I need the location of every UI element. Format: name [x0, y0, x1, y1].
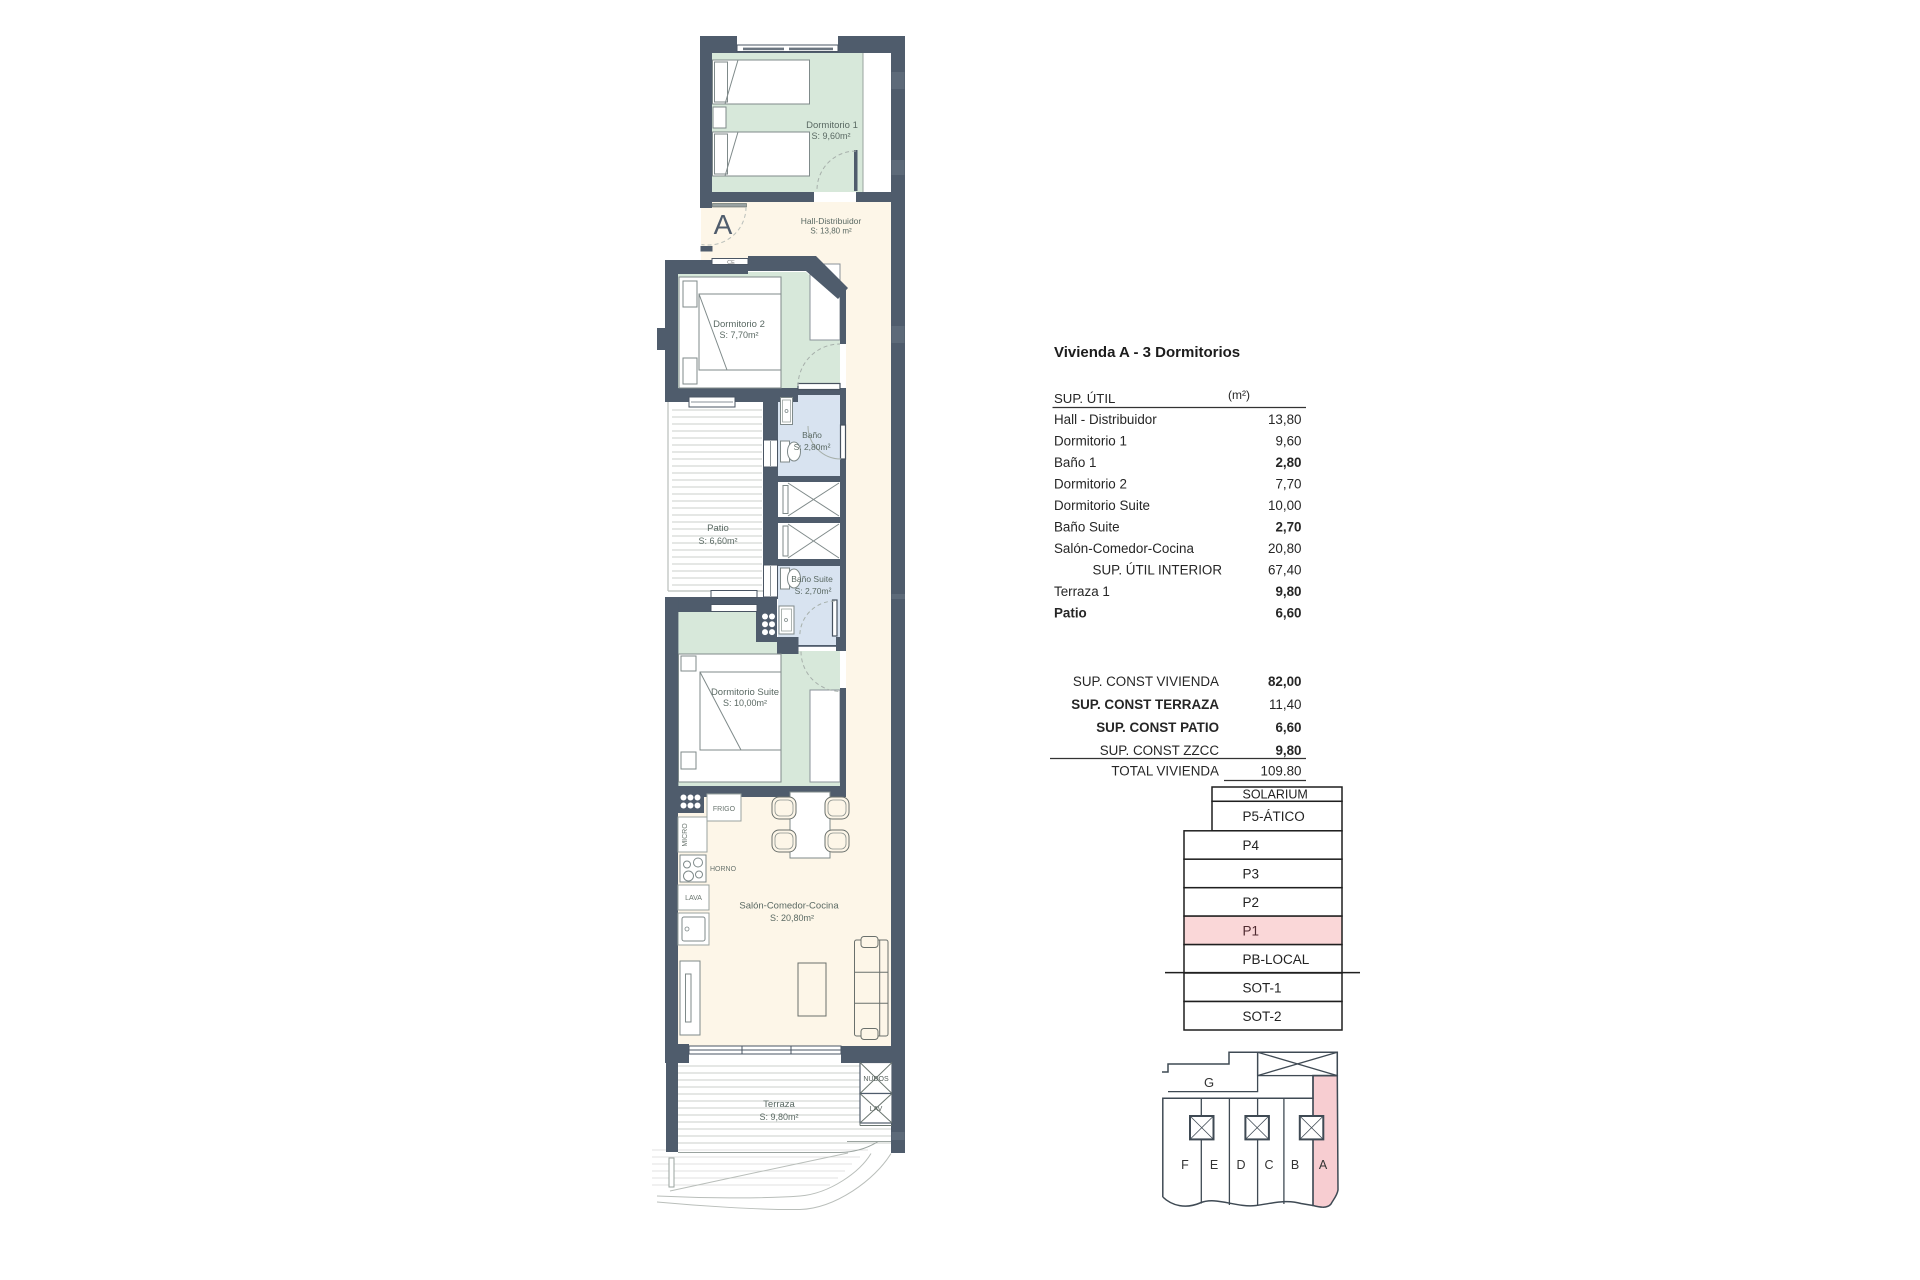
svg-text:CE: CE: [727, 260, 735, 266]
svg-text:67,40: 67,40: [1268, 563, 1302, 578]
svg-text:109.80: 109.80: [1261, 764, 1302, 779]
svg-text:Baño: Baño: [802, 430, 822, 440]
svg-text:Dormitorio 2: Dormitorio 2: [713, 319, 765, 330]
svg-text:SUP. ÚTIL INTERIOR: SUP. ÚTIL INTERIOR: [1093, 563, 1223, 578]
svg-text:FRIGO: FRIGO: [713, 806, 736, 813]
svg-text:9,80: 9,80: [1275, 584, 1301, 599]
svg-text:6,60: 6,60: [1275, 606, 1301, 621]
svg-text:P4: P4: [1243, 838, 1260, 853]
svg-text:SUP. CONST PATIO: SUP. CONST PATIO: [1096, 720, 1219, 735]
svg-text:10,00: 10,00: [1268, 498, 1302, 513]
svg-text:C: C: [1264, 1158, 1273, 1172]
svg-text:S: 2,70m²: S: 2,70m²: [795, 586, 832, 596]
svg-text:82,00: 82,00: [1268, 674, 1302, 689]
svg-text:Baño Suite: Baño Suite: [791, 574, 833, 584]
svg-text:MICRO: MICRO: [682, 823, 689, 847]
svg-text:NUDOS: NUDOS: [863, 1076, 889, 1083]
svg-text:F: F: [1181, 1158, 1189, 1172]
svg-text:LAV: LAV: [870, 1106, 883, 1113]
svg-text:S: 20,80m²: S: 20,80m²: [770, 913, 814, 923]
svg-text:SOT-1: SOT-1: [1243, 981, 1282, 996]
svg-text:S: 13,80 m²: S: 13,80 m²: [810, 227, 852, 236]
svg-text:Dormitorio 1: Dormitorio 1: [806, 120, 858, 131]
svg-text:11,40: 11,40: [1269, 697, 1302, 712]
svg-text:Terraza 1: Terraza 1: [1054, 584, 1110, 599]
svg-text:7,70: 7,70: [1275, 477, 1301, 492]
svg-text:S: 2,80m²: S: 2,80m²: [794, 442, 831, 452]
svg-text:(m²): (m²): [1228, 388, 1250, 402]
svg-text:D: D: [1236, 1158, 1245, 1172]
svg-text:HORNO: HORNO: [710, 866, 737, 873]
svg-text:Hall-Distribuidor: Hall-Distribuidor: [801, 216, 862, 226]
svg-text:Baño 1: Baño 1: [1054, 455, 1096, 470]
svg-text:13,80: 13,80: [1268, 412, 1302, 427]
svg-text:20,80: 20,80: [1268, 541, 1302, 556]
svg-text:SOLARIUM: SOLARIUM: [1243, 788, 1308, 802]
svg-text:SOT-2: SOT-2: [1243, 1009, 1282, 1024]
svg-text:Vivienda A - 3 Dormitorios: Vivienda A - 3 Dormitorios: [1054, 344, 1240, 361]
svg-text:Baño Suite: Baño Suite: [1054, 520, 1120, 535]
svg-text:S: 10,00m²: S: 10,00m²: [723, 698, 767, 708]
svg-text:SUP. ÚTIL: SUP. ÚTIL: [1054, 391, 1115, 406]
svg-text:2,80: 2,80: [1275, 455, 1301, 470]
svg-text:Salón-Comedor-Cocina: Salón-Comedor-Cocina: [739, 901, 839, 912]
svg-text:S: 7,70m²: S: 7,70m²: [719, 330, 758, 340]
svg-text:Salón-Comedor-Cocina: Salón-Comedor-Cocina: [1054, 541, 1194, 556]
svg-text:Hall - Distribuidor: Hall - Distribuidor: [1054, 412, 1157, 427]
svg-text:Terraza: Terraza: [763, 1099, 795, 1110]
svg-text:S: 9,60m²: S: 9,60m²: [811, 131, 850, 141]
svg-text:S: 9,80m²: S: 9,80m²: [759, 1112, 798, 1122]
svg-text:SUP. CONST VIVIENDA: SUP. CONST VIVIENDA: [1073, 674, 1219, 689]
svg-text:P2: P2: [1243, 895, 1260, 910]
svg-text:P1: P1: [1243, 924, 1260, 939]
svg-text:Dormitorio 1: Dormitorio 1: [1054, 434, 1127, 449]
svg-text:Patio: Patio: [707, 523, 729, 534]
svg-text:Patio: Patio: [1054, 606, 1087, 621]
svg-text:S: 6,60m²: S: 6,60m²: [698, 536, 737, 546]
svg-text:P5-ÁTICO: P5-ÁTICO: [1243, 809, 1305, 824]
svg-text:G: G: [1204, 1075, 1214, 1090]
svg-text:SUP. CONST TERRAZA: SUP. CONST TERRAZA: [1071, 697, 1219, 712]
svg-text:A: A: [714, 209, 733, 240]
svg-text:9,80: 9,80: [1275, 743, 1301, 758]
svg-text:Dormitorio Suite: Dormitorio Suite: [1054, 498, 1150, 513]
svg-text:SUP. CONST ZZCC: SUP. CONST ZZCC: [1100, 743, 1220, 758]
svg-text:A: A: [1319, 1158, 1328, 1172]
svg-text:2,70: 2,70: [1275, 520, 1301, 535]
svg-text:LAVA: LAVA: [685, 895, 702, 902]
svg-text:B: B: [1291, 1158, 1299, 1172]
svg-text:Dormitorio Suite: Dormitorio Suite: [711, 687, 779, 698]
svg-text:P3: P3: [1243, 867, 1260, 882]
svg-text:6,60: 6,60: [1275, 720, 1301, 735]
svg-text:PB-LOCAL: PB-LOCAL: [1243, 952, 1310, 967]
svg-text:Dormitorio 2: Dormitorio 2: [1054, 477, 1127, 492]
svg-text:9,60: 9,60: [1275, 434, 1301, 449]
svg-text:TOTAL VIVIENDA: TOTAL VIVIENDA: [1111, 764, 1219, 779]
svg-text:E: E: [1210, 1158, 1218, 1172]
